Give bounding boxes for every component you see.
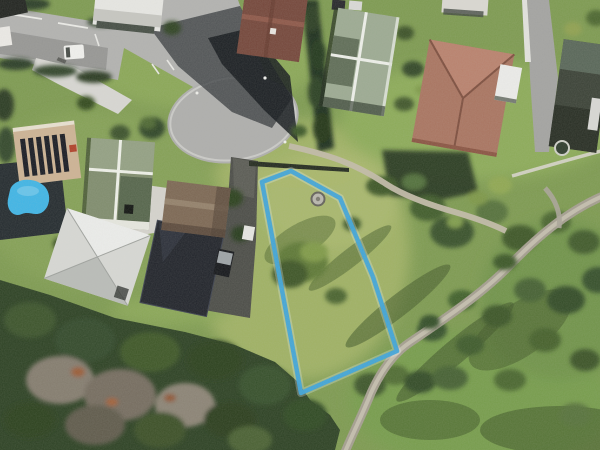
photo-grain <box>0 0 600 450</box>
aerial-photo-canvas <box>0 0 600 450</box>
aerial-photo <box>0 0 600 450</box>
